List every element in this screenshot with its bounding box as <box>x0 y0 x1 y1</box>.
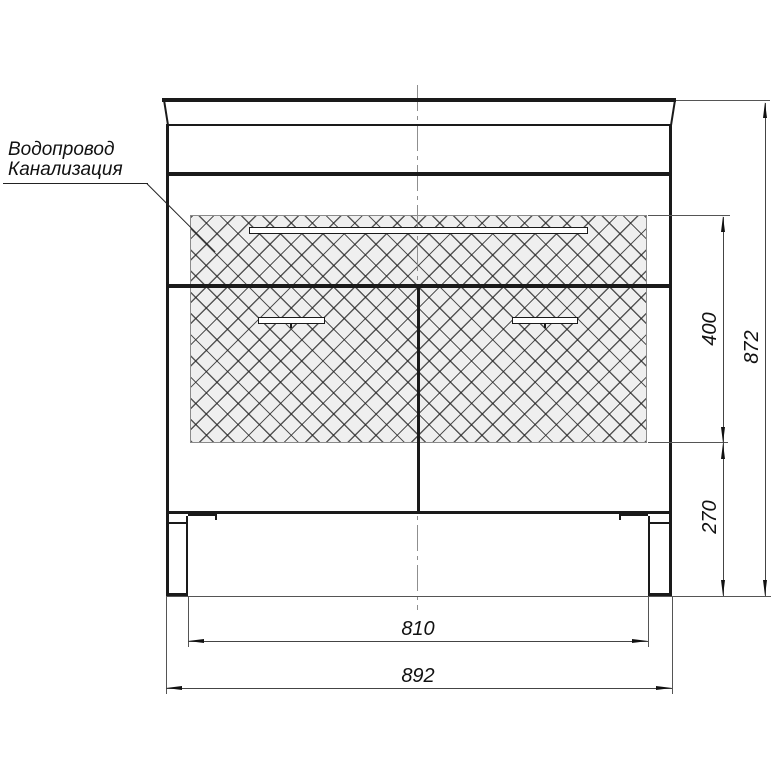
callout-underline <box>3 183 148 184</box>
ext-line-hatch-bottom <box>648 442 728 443</box>
ext-line-hatch-top <box>648 215 730 216</box>
right-leg-inner-edge <box>648 516 650 596</box>
ext-line-top <box>676 100 770 101</box>
dim-label-270: 270 <box>699 487 721 547</box>
arrow-400-bottom <box>721 427 725 443</box>
dim-line-400 <box>723 217 724 443</box>
countertop-bottom-edge <box>166 124 672 126</box>
right-leg-top-line <box>650 522 669 524</box>
top-rail-line <box>166 172 672 176</box>
arrow-892-right <box>656 686 672 690</box>
arrow-270-bottom <box>721 580 725 596</box>
dim-line-872 <box>765 103 766 596</box>
left-door-handle-stem <box>290 324 292 328</box>
right-plinth-tick <box>619 516 621 520</box>
dim-line-270 <box>723 443 724 596</box>
left-leg-top-line <box>168 522 186 524</box>
callout-sewer-label: Канализация <box>8 160 123 180</box>
countertop-left-edge <box>163 100 169 126</box>
left-plinth-ledge <box>188 514 217 516</box>
arrow-810-right <box>632 639 648 643</box>
ext-line-892-left <box>166 597 167 694</box>
callout-water-label: Водопровод <box>8 140 114 160</box>
left-plinth-tick <box>215 516 217 520</box>
right-plinth-ledge <box>619 514 648 516</box>
ext-line-892-right <box>672 597 673 694</box>
left-door-handle <box>258 317 325 324</box>
technical-drawing-vanity-cabinet: Водопровод Канализация 400 872 270 810 8… <box>0 0 780 780</box>
left-leg-inner-edge <box>186 516 188 596</box>
cabinet-left-side <box>166 125 169 596</box>
dim-label-872: 872 <box>741 317 763 377</box>
right-door-handle-stem <box>544 324 546 328</box>
dim-line-810 <box>188 641 648 642</box>
right-door-handle <box>512 317 578 324</box>
arrow-872-top <box>763 102 767 118</box>
countertop-right-edge <box>670 100 676 126</box>
dim-label-400: 400 <box>699 299 721 359</box>
dim-label-892: 892 <box>358 665 478 687</box>
ext-line-floor <box>166 596 771 597</box>
ext-line-810-right <box>648 597 649 647</box>
cabinet-right-side <box>669 125 672 596</box>
arrow-270-top <box>721 443 725 459</box>
dim-line-892 <box>166 688 672 689</box>
arrow-400-top <box>721 216 725 232</box>
arrow-872-bottom <box>763 580 767 596</box>
arrow-892-left <box>166 686 182 690</box>
door-gap <box>417 288 420 513</box>
dim-label-810: 810 <box>358 618 478 640</box>
countertop-top-edge <box>162 98 676 102</box>
arrow-810-left <box>188 639 204 643</box>
drawer-handle <box>249 227 588 234</box>
